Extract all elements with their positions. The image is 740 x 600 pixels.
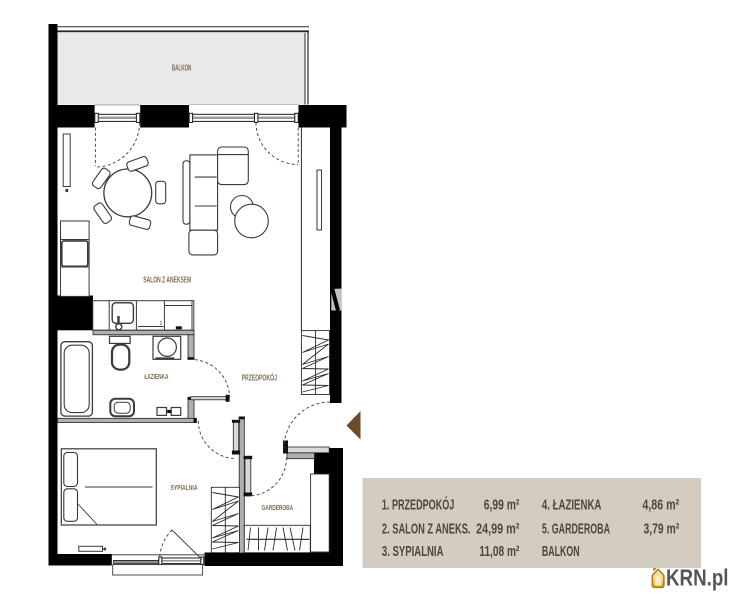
svg-text:BALKON: BALKON — [172, 64, 192, 73]
svg-text:ŁAZIENKA: ŁAZIENKA — [144, 372, 168, 381]
svg-text:1. PRZEDPOKÓJ: 1. PRZEDPOKÓJ — [382, 496, 454, 514]
svg-text:3,79 m²: 3,79 m² — [644, 521, 680, 538]
svg-text:PRZEDPOKÓJ: PRZEDPOKÓJ — [242, 374, 277, 383]
svg-text:11,08 m²: 11,08 m² — [479, 543, 519, 560]
svg-text:4,86 m²: 4,86 m² — [642, 497, 679, 514]
svg-text:SYPIALNIA: SYPIALNIA — [171, 483, 198, 492]
svg-text:2: 2 — [160, 321, 163, 327]
svg-text:SALON Z ANEKSEM: SALON Z ANEKSEM — [143, 276, 191, 285]
svg-text:KRN.pl: KRN.pl — [666, 565, 729, 591]
svg-text:3. SYPIALNIA: 3. SYPIALNIA — [382, 543, 444, 560]
svg-text:5. GARDEROBA: 5. GARDEROBA — [542, 521, 610, 538]
svg-text:2. SALON Z ANEKS.: 2. SALON Z ANEKS. — [382, 521, 471, 538]
svg-text:BALKON: BALKON — [542, 543, 580, 560]
svg-text:GARDEROBA: GARDEROBA — [262, 503, 294, 512]
svg-text:6,99 m²: 6,99 m² — [484, 497, 520, 514]
svg-text:24,99 m²: 24,99 m² — [476, 521, 519, 538]
svg-text:4. ŁAZIENKA: 4. ŁAZIENKA — [542, 497, 602, 514]
